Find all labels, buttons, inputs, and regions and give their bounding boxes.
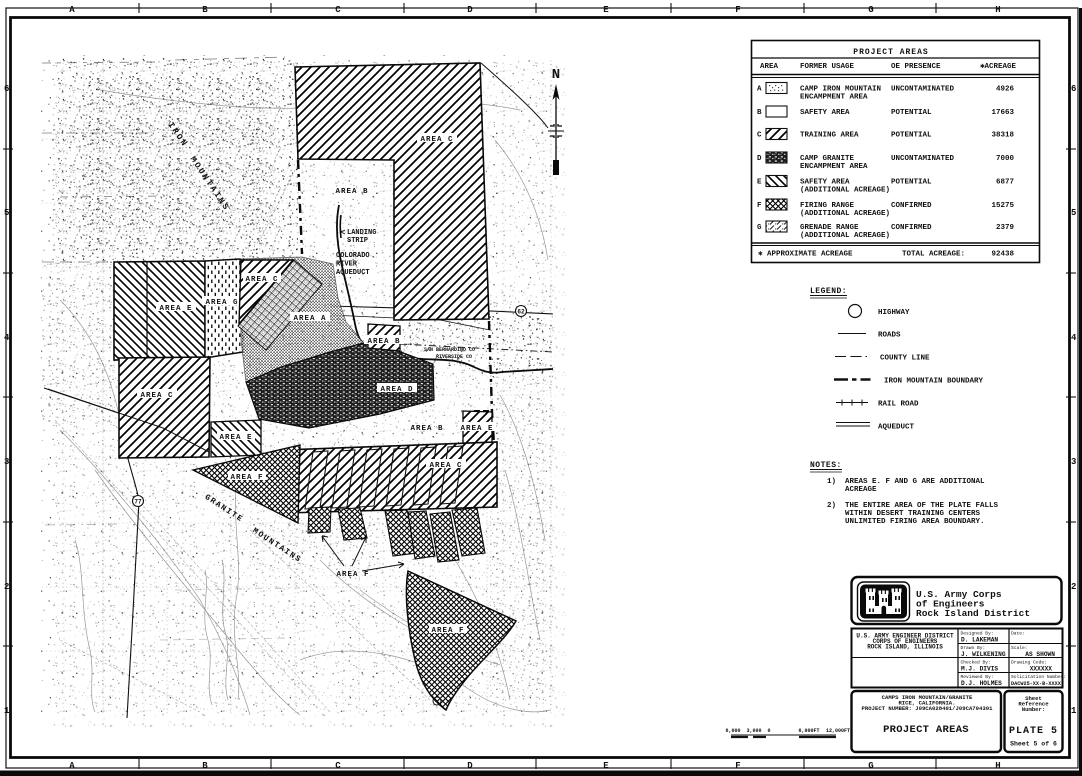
svg-text:TOTAL ACREAGE:: TOTAL ACREAGE: (902, 251, 965, 259)
svg-text:RAIL ROAD: RAIL ROAD (878, 401, 919, 409)
svg-text:E: E (603, 761, 609, 771)
svg-text:XXXXXX: XXXXXX (1030, 666, 1053, 673)
svg-text:3,000: 3,000 (746, 728, 761, 734)
svg-text:D: D (467, 761, 473, 771)
svg-text:RIVER: RIVER (336, 261, 358, 269)
svg-text:A: A (69, 5, 75, 15)
svg-text:5: 5 (1071, 208, 1076, 218)
svg-text:AREA G: AREA G (205, 299, 238, 307)
svg-text:FORMER USAGE: FORMER USAGE (800, 63, 855, 71)
svg-text:CONFIRMED: CONFIRMED (891, 224, 932, 232)
svg-text:12,000FT: 12,000FT (826, 728, 850, 734)
svg-text:IRON MOUNTAIN BOUNDARY: IRON MOUNTAIN BOUNDARY (884, 378, 984, 386)
svg-text:D: D (757, 155, 762, 163)
svg-text:J. WILKENING: J. WILKENING (961, 651, 1006, 658)
svg-text:AREA C: AREA C (429, 462, 462, 470)
svg-text:B: B (202, 761, 208, 771)
svg-text:4: 4 (4, 333, 10, 343)
svg-text:THE ENTIRE AREA OF THE PLATE F: THE ENTIRE AREA OF THE PLATE FALLS (845, 502, 999, 510)
svg-text:F: F (757, 202, 762, 210)
svg-text:AREA C: AREA C (140, 392, 173, 400)
svg-text:17663: 17663 (991, 109, 1014, 117)
svg-text:5: 5 (4, 208, 9, 218)
svg-text:3: 3 (4, 457, 9, 467)
svg-text:C: C (335, 5, 341, 15)
svg-text:✱ APPROXIMATE ACREAGE: ✱ APPROXIMATE ACREAGE (758, 251, 853, 259)
svg-text:SAN BERNARDINO CO: SAN BERNARDINO CO (424, 347, 475, 353)
svg-text:(ADDITIONAL ACREAGE): (ADDITIONAL ACREAGE) (800, 187, 890, 195)
svg-text:CAMP IRON MOUNTAIN: CAMP IRON MOUNTAIN (800, 86, 881, 94)
svg-text:POTENTIAL: POTENTIAL (891, 179, 932, 187)
svg-text:Number:: Number: (1022, 706, 1046, 713)
svg-text:UNCONTAMINATED: UNCONTAMINATED (891, 155, 955, 163)
svg-text:AREA F: AREA F (230, 474, 263, 482)
svg-text:A: A (69, 761, 75, 771)
svg-text:AREA: AREA (760, 63, 779, 71)
svg-text:E: E (757, 179, 762, 187)
svg-text:FIRING RANGE: FIRING RANGE (800, 202, 855, 210)
svg-text:6,000: 6,000 (725, 728, 740, 734)
svg-text:WITHIN DESERT TRAINING CENTERS: WITHIN DESERT TRAINING CENTERS (845, 510, 981, 518)
svg-text:38318: 38318 (991, 132, 1014, 140)
svg-text:M.J. DIVIS: M.J. DIVIS (961, 666, 998, 673)
svg-text:ROCK ISLAND, ILLINOIS: ROCK ISLAND, ILLINOIS (867, 644, 943, 651)
svg-text:H: H (995, 5, 1000, 15)
svg-text:PLATE 5: PLATE 5 (1009, 726, 1058, 737)
svg-text:AQUEDUCT: AQUEDUCT (878, 424, 915, 432)
svg-text:AREA B: AREA B (335, 188, 368, 196)
svg-text:NOTES:: NOTES: (810, 461, 842, 470)
svg-text:AREA E: AREA E (460, 425, 493, 433)
svg-text:E: E (603, 5, 609, 15)
svg-text:LEGEND:: LEGEND: (810, 287, 847, 296)
svg-text:2): 2) (827, 502, 836, 510)
svg-text:AREA D: AREA D (380, 386, 413, 394)
svg-text:N: N (552, 67, 560, 83)
svg-text:Solicitation Number:: Solicitation Number: (1011, 674, 1066, 680)
svg-text:(ADDITIONAL ACREAGE): (ADDITIONAL ACREAGE) (800, 232, 890, 240)
svg-text:G: G (868, 5, 873, 15)
svg-text:B: B (202, 5, 208, 15)
svg-text:15275: 15275 (991, 202, 1014, 210)
svg-text:77: 77 (134, 499, 142, 506)
svg-text:1: 1 (4, 706, 10, 716)
svg-text:6: 6 (4, 84, 9, 94)
svg-text:3: 3 (1071, 457, 1076, 467)
svg-text:0: 0 (767, 728, 770, 734)
svg-text:6: 6 (1071, 84, 1076, 94)
svg-text:C: C (335, 761, 341, 771)
svg-text:4: 4 (1071, 333, 1077, 343)
svg-text:AREAS E. F AND G ARE ADDITIONA: AREAS E. F AND G ARE ADDITIONAL (845, 478, 985, 486)
svg-text:A: A (757, 86, 762, 94)
svg-text:C: C (757, 132, 762, 140)
svg-text:2: 2 (4, 582, 9, 592)
svg-text:UNLIMITED FIRING AREA BOUNDARY: UNLIMITED FIRING AREA BOUNDARY. (845, 518, 985, 526)
svg-text:AREA A: AREA A (293, 315, 326, 323)
svg-text:AREA E: AREA E (159, 305, 192, 313)
svg-text:F: F (735, 5, 740, 15)
svg-text:ENCAMPMENT AREA: ENCAMPMENT AREA (800, 163, 868, 171)
svg-text:PROJECT AREAS: PROJECT AREAS (853, 48, 928, 57)
svg-text:COUNTY LINE: COUNTY LINE (880, 355, 930, 363)
svg-text:AQUEDUCT: AQUEDUCT (336, 269, 370, 277)
svg-text:(ADDITIONAL ACREAGE): (ADDITIONAL ACREAGE) (800, 210, 890, 218)
svg-text:SAFETY AREA: SAFETY AREA (800, 109, 850, 117)
svg-text:AS SHOWN: AS SHOWN (1025, 651, 1055, 658)
svg-text:1: 1 (1071, 706, 1077, 716)
svg-text:OE PRESENCE: OE PRESENCE (891, 63, 941, 71)
svg-text:Date:: Date: (1011, 631, 1025, 637)
svg-text:AREA B: AREA B (367, 338, 400, 346)
svg-text:F: F (735, 761, 740, 771)
svg-text:SAFETY AREA: SAFETY AREA (800, 179, 850, 187)
svg-text:D.J. HOLMES: D.J. HOLMES (961, 680, 1002, 687)
svg-text:HIGHWAY: HIGHWAY (878, 309, 910, 317)
svg-text:92438: 92438 (991, 251, 1014, 259)
svg-text:AREA F: AREA F (431, 627, 464, 635)
svg-text:AREA C: AREA C (245, 276, 278, 284)
svg-text:B: B (757, 109, 762, 117)
svg-text:H: H (995, 761, 1000, 771)
svg-text:PROJECT AREAS: PROJECT AREAS (883, 724, 969, 736)
svg-text:✱ACREAGE: ✱ACREAGE (980, 63, 1017, 71)
svg-text:AREA F: AREA F (336, 571, 369, 579)
svg-text:7000: 7000 (996, 155, 1015, 163)
svg-text:LANDING: LANDING (347, 229, 376, 237)
svg-text:2: 2 (1071, 582, 1076, 592)
svg-text:Rock Island District: Rock Island District (916, 608, 1030, 619)
svg-text:D: D (467, 5, 473, 15)
svg-text:Sheet 5 of 6: Sheet 5 of 6 (1010, 741, 1057, 748)
svg-text:G: G (757, 224, 762, 232)
svg-text:PROJECT NUMBER: J09CA028401/J0: PROJECT NUMBER: J09CA028401/J09CA704301 (862, 705, 994, 712)
svg-text:D. LAKEMAN: D. LAKEMAN (961, 637, 998, 644)
svg-text:G: G (868, 761, 873, 771)
svg-text:ROADS: ROADS (878, 332, 901, 340)
svg-text:COLORADO: COLORADO (336, 252, 370, 260)
svg-text:POTENTIAL: POTENTIAL (891, 109, 932, 117)
svg-text:UNCONTAMINATED: UNCONTAMINATED (891, 86, 955, 94)
svg-text:62: 62 (517, 309, 525, 316)
svg-text:TRAINING AREA: TRAINING AREA (800, 132, 859, 140)
svg-text:CONFIRMED: CONFIRMED (891, 202, 932, 210)
svg-text:AREA E: AREA E (219, 434, 252, 442)
svg-text:1): 1) (827, 478, 836, 486)
svg-text:4926: 4926 (996, 86, 1015, 94)
svg-text:DACW25-XX-B-XXXX: DACW25-XX-B-XXXX (1011, 681, 1062, 687)
svg-text:6877: 6877 (996, 179, 1014, 187)
svg-text:ACREAGE: ACREAGE (845, 486, 877, 494)
svg-text:ENCAMPMENT AREA: ENCAMPMENT AREA (800, 94, 868, 102)
svg-text:6,000FT: 6,000FT (798, 728, 819, 734)
svg-text:AREA B: AREA B (410, 425, 443, 433)
svg-text:GRENADE RANGE: GRENADE RANGE (800, 224, 859, 232)
svg-text:2379: 2379 (996, 224, 1015, 232)
svg-text:STRIP: STRIP (347, 237, 368, 245)
svg-text:AREA C: AREA C (420, 136, 453, 144)
svg-text:CAMP GRANITE: CAMP GRANITE (800, 155, 855, 163)
svg-text:POTENTIAL: POTENTIAL (891, 132, 932, 140)
